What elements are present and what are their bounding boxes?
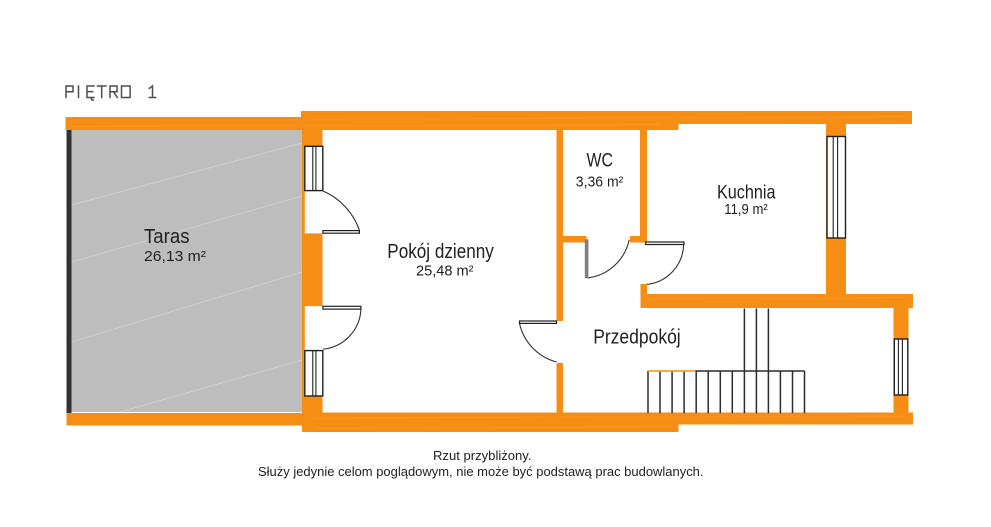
svg-text:3,36 m²: 3,36 m² [576,175,624,191]
svg-text:Taras: Taras [144,226,190,248]
svg-text:Kuchnia: Kuchnia [717,182,776,204]
svg-text:Służy jedynie celom poglądowym: Służy jedynie celom poglądowym, nie może… [258,464,704,479]
svg-text:26,13 m²: 26,13 m² [144,249,206,265]
svg-text:25,48 m²: 25,48 m² [416,264,474,280]
svg-text:Rzut przybliżony.: Rzut przybliżony. [433,448,532,463]
svg-text:Przedpokój: Przedpokój [593,327,681,349]
svg-text:11,9 m²: 11,9 m² [724,202,768,218]
svg-text:WC: WC [587,149,614,171]
svg-text:Pokój dzienny: Pokój dzienny [387,240,494,263]
